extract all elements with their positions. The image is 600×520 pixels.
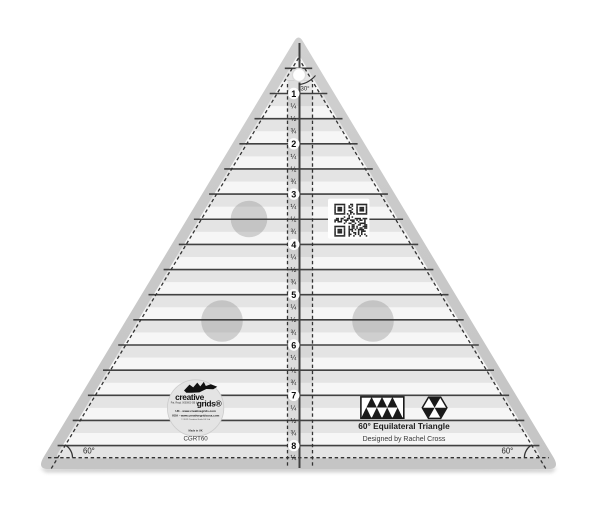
svg-text:USA - www.creativegridsusa.com: USA - www.creativegridsusa.com [172,414,220,418]
svg-text:½: ½ [290,367,296,375]
svg-text:4: 4 [291,240,296,250]
svg-text:60°: 60° [502,447,514,456]
svg-text:¼: ¼ [290,355,296,362]
svg-text:2: 2 [291,139,296,149]
svg-text:60° Equilateral Triangle: 60° Equilateral Triangle [358,421,450,431]
svg-text:Pat. Regd. 0000000 GB & Int.: Pat. Regd. 0000000 GB & Int. [171,401,202,404]
svg-text:¾: ¾ [290,229,296,236]
svg-text:¼: ¼ [290,305,296,312]
svg-text:¾: ¾ [290,179,296,186]
svg-text:UK - www.creativegrids.com: UK - www.creativegrids.com [175,409,216,413]
svg-text:Made in UK: Made in UK [189,428,203,432]
svg-text:¾: ¾ [290,280,296,287]
svg-text:¼: ¼ [290,204,296,211]
svg-text:½: ½ [290,165,296,173]
svg-text:CGRT60: CGRT60 [183,435,208,442]
svg-text:¾: ¾ [290,330,296,337]
svg-text:½: ½ [290,417,296,425]
svg-text:6: 6 [291,340,296,350]
svg-text:¼: ¼ [290,405,296,412]
svg-text:30°: 30° [301,87,311,93]
svg-text:½: ½ [290,266,296,274]
svg-text:8: 8 [291,441,296,451]
svg-text:½: ½ [290,316,296,324]
svg-text:© 2012 Creative Grids UK Ltd: © 2012 Creative Grids UK Ltd [181,418,211,421]
svg-text:¼: ¼ [290,104,296,111]
svg-text:¾: ¾ [290,380,296,387]
svg-text:Designed by Rachel Cross: Designed by Rachel Cross [363,436,446,443]
svg-text:½: ½ [290,216,296,224]
svg-text:¼: ¼ [290,254,296,261]
svg-text:60°: 60° [83,447,95,456]
svg-text:¾: ¾ [290,129,296,136]
svg-text:¾: ¾ [290,430,296,437]
svg-text:7: 7 [291,391,296,401]
svg-text:1: 1 [291,89,296,99]
svg-text:½: ½ [290,115,296,123]
svg-text:¼: ¼ [290,154,296,161]
svg-text:3: 3 [291,190,296,200]
svg-text:5: 5 [291,290,296,300]
svg-text:¼: ¼ [290,455,296,462]
